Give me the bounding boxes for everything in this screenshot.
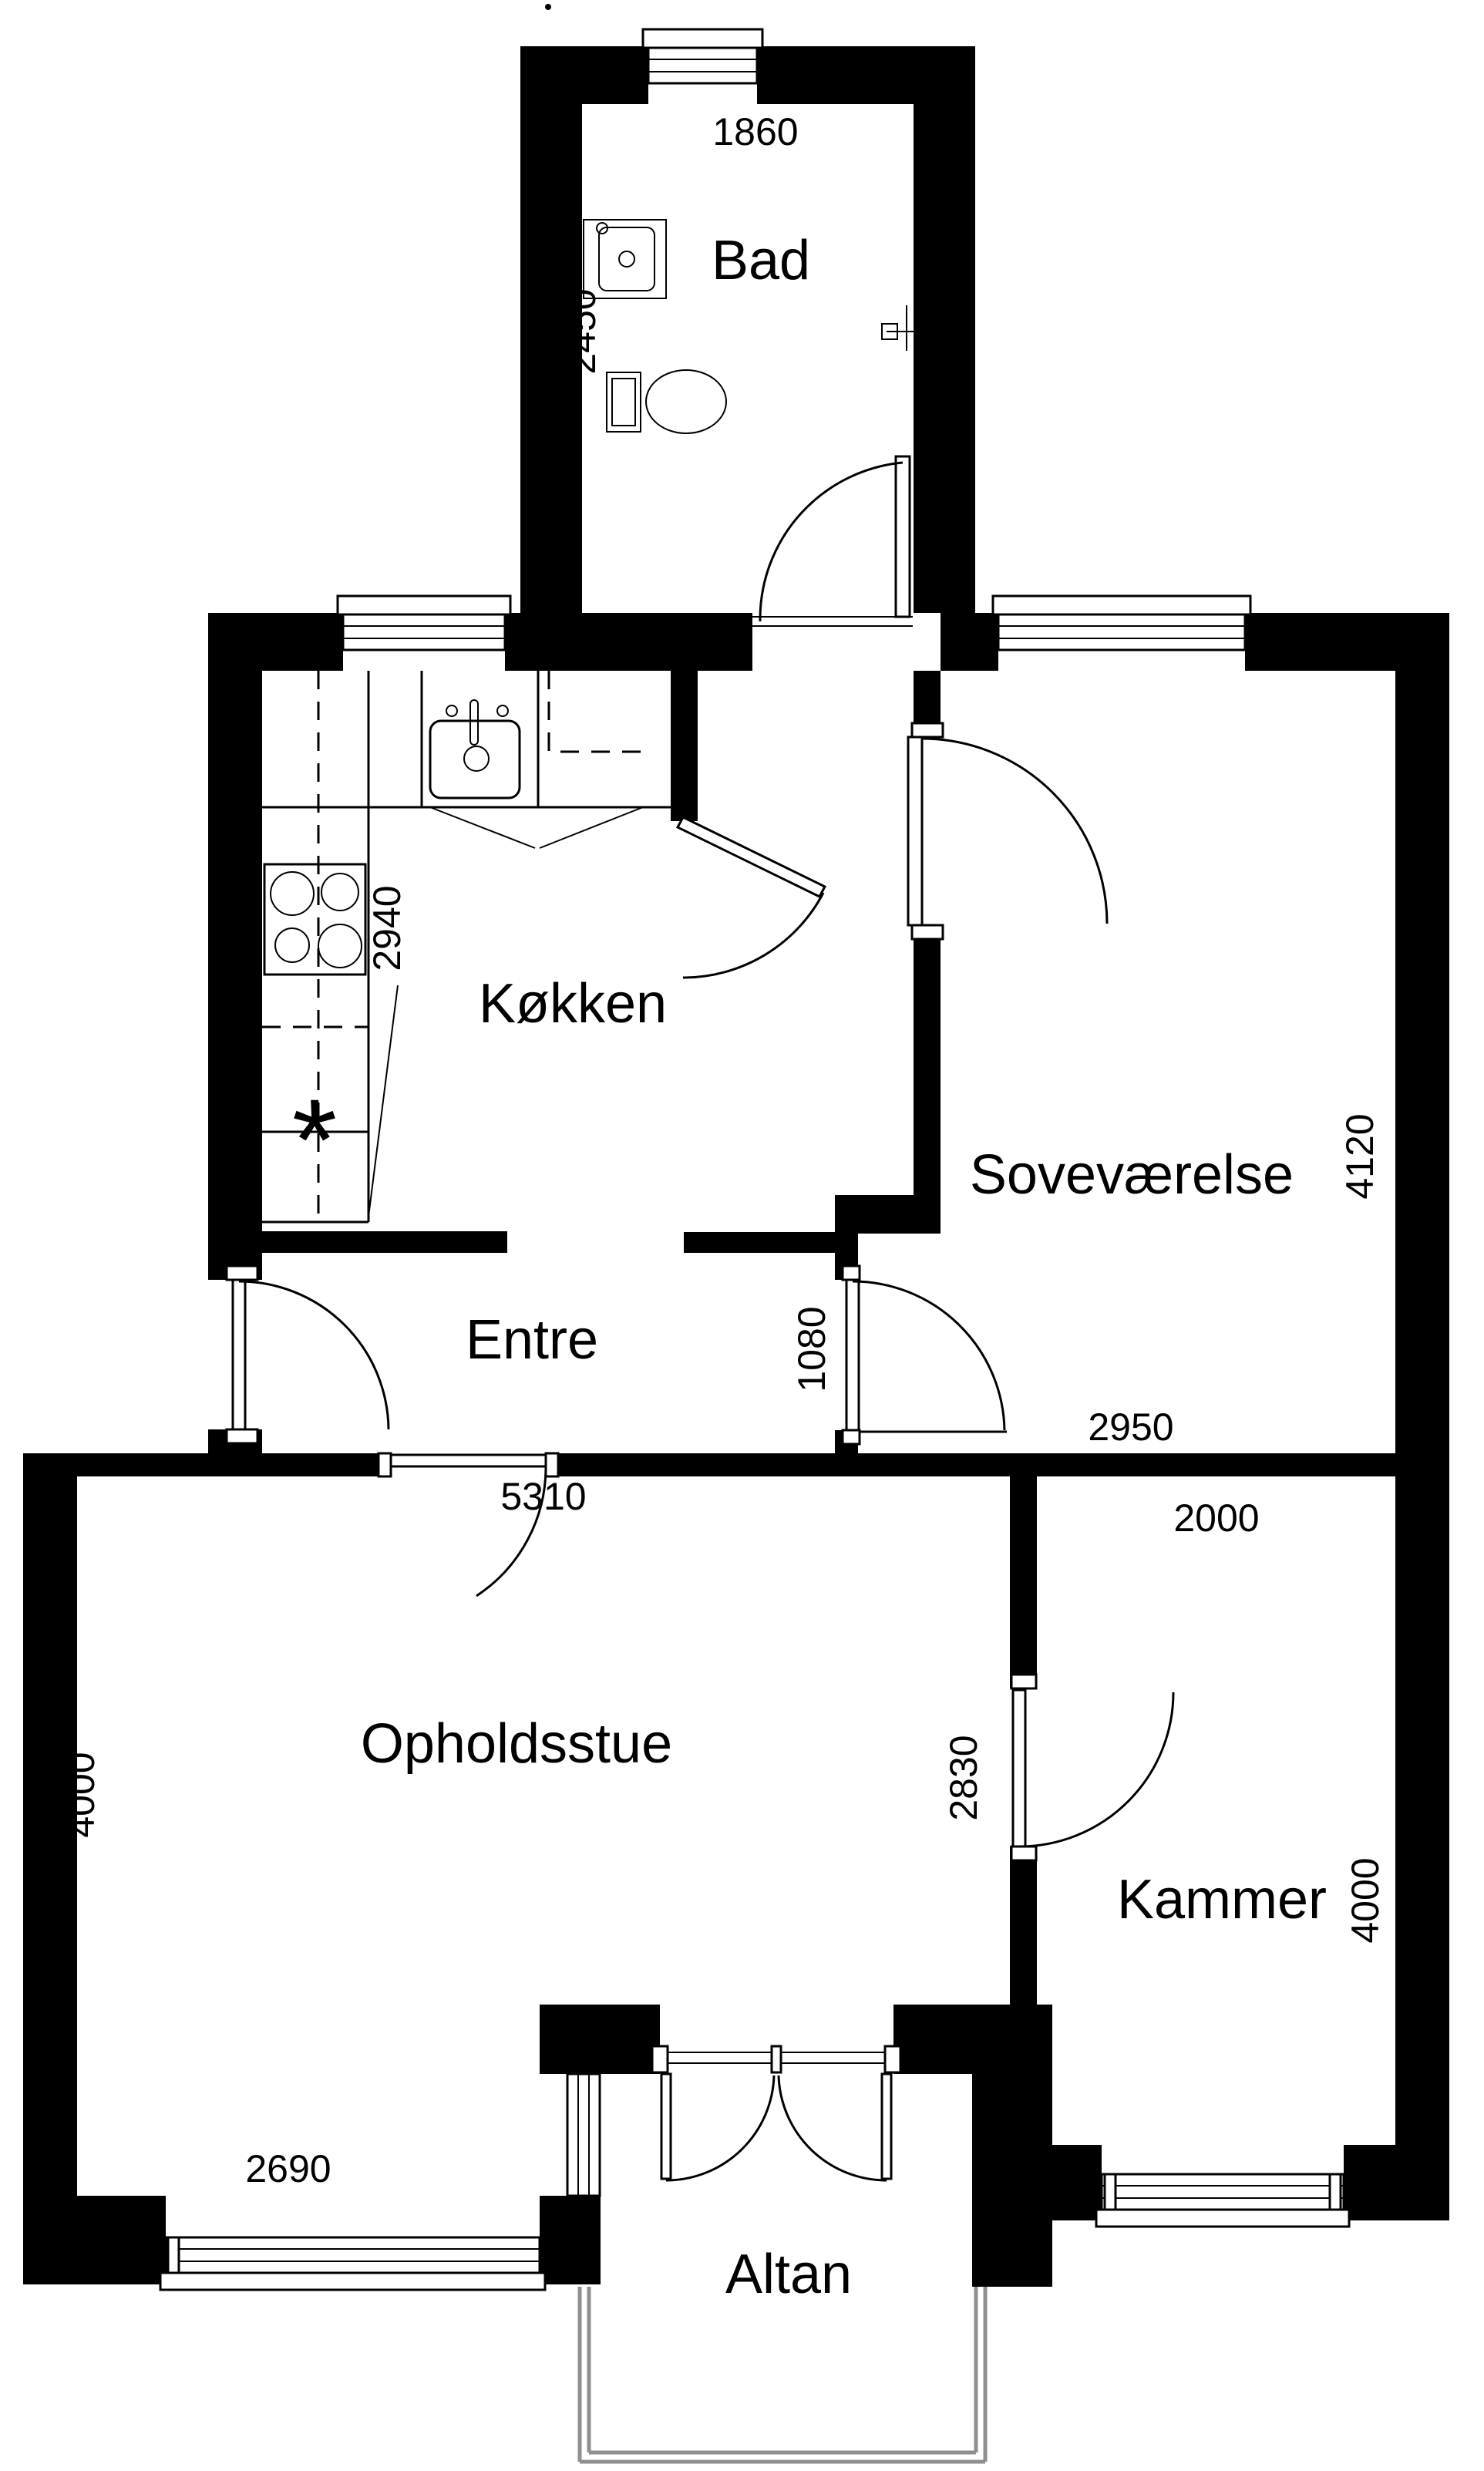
door-bedroom [908,723,1107,939]
freezer-asterisk: * [292,1075,337,1204]
wall [1344,2145,1449,2220]
room-label-living: Opholdsstue [361,1713,672,1775]
window-bedroom [993,596,1250,650]
door-entrance [227,1266,389,1443]
stray-dot [545,4,551,10]
door-arc-bedroom [922,739,1107,924]
door-kitchen [678,817,825,978]
door-arc-chamber [1019,1692,1173,1847]
dim-living-width: 5310 [500,1475,586,1518]
kitchen-sink-icon [430,700,520,798]
door-arc-entry-bedroom [853,1281,1004,1430]
room-label-chamber: Kammer [1117,1869,1327,1931]
dim-chamber-door: 2830 [942,1735,985,1820]
door-arc-entrance [239,1281,389,1429]
door-leaf-balcony-right [882,2074,891,2179]
dim-kitchen-depth: 2940 [365,885,409,971]
door-leaf-entry-bedroom [846,1280,859,1430]
door-leaf-bad [896,456,910,617]
wall [671,671,698,821]
door-arc-kitchen [683,893,823,978]
toilet-icon [607,370,726,433]
dim-entry-width: 1080 [790,1306,833,1392]
dim-chamber-depth: 4000 [1344,1857,1387,1943]
wall [1245,613,1449,671]
window-balcony-sidelight [567,2074,600,2196]
wall [914,925,941,1195]
door-chamber [1011,1675,1173,1860]
wall [1010,1476,1037,1688]
balcony-railing [580,2287,985,2462]
door-leaf-kitchen [678,817,825,897]
wall [893,2005,972,2074]
door-leaf-entrance [233,1280,245,1429]
floor-plan-page: * Bad Køkken Soveværelse Entre Opholdsst… [0,0,1484,2471]
kitchen-fixtures: * [262,671,698,1222]
door-leaf-bedroom [908,737,922,925]
door-entry-bedroom [843,1266,1007,1444]
dim-chamber-width: 2000 [1173,1496,1259,1540]
wall [23,1453,77,2284]
wall [208,613,262,1249]
door-leaf-balcony-left [661,2074,671,2179]
wall [1010,1847,1037,2008]
wall [23,1453,389,1476]
window-bad [643,29,762,83]
bathroom-sink-icon [584,220,666,298]
floor-plan-svg: * Bad Køkken Soveværelse Entre Opholdsst… [0,0,1484,2471]
room-label-entry: Entre [466,1309,598,1371]
wall [520,46,648,104]
window-kitchen [338,596,510,650]
dim-bedroom-width: 2950 [1088,1406,1173,1449]
wall [208,1231,507,1253]
door-arc-bad [760,463,903,621]
wall [540,2005,660,2074]
room-label-bad: Bad [712,230,810,291]
wall [547,1453,1449,1476]
stove-icon [264,864,365,975]
room-label-bedroom: Soveværelse [970,1144,1294,1206]
window-chamber [1096,2174,1349,2227]
door-arc-balcony-left [666,2075,774,2180]
wall [684,1232,835,1253]
room-label-kitchen: Køkken [479,973,667,1035]
dim-living-depth: 4000 [59,1752,103,1837]
dim-bad-depth: 2450 [560,288,604,374]
dim-living-window: 2690 [245,2147,331,2190]
door-leaf-chamber [1013,1690,1025,1847]
wall [505,613,698,671]
wall [941,613,998,671]
window-living [160,2237,545,2290]
wall [1395,1476,1449,2220]
wall [23,2196,166,2284]
dim-bad-width: 1860 [712,110,798,153]
door-balcony [652,2046,900,2180]
room-label-balcony: Altan [725,2244,852,2305]
wall [1395,671,1449,1476]
wall [1037,2145,1102,2220]
wall [566,2228,601,2284]
door-leaf-living [391,1455,546,1466]
wall [914,46,975,613]
dim-bedroom-depth: 4120 [1338,1113,1381,1199]
door-arc-balcony-right [779,2075,887,2180]
door-bad [752,456,913,626]
